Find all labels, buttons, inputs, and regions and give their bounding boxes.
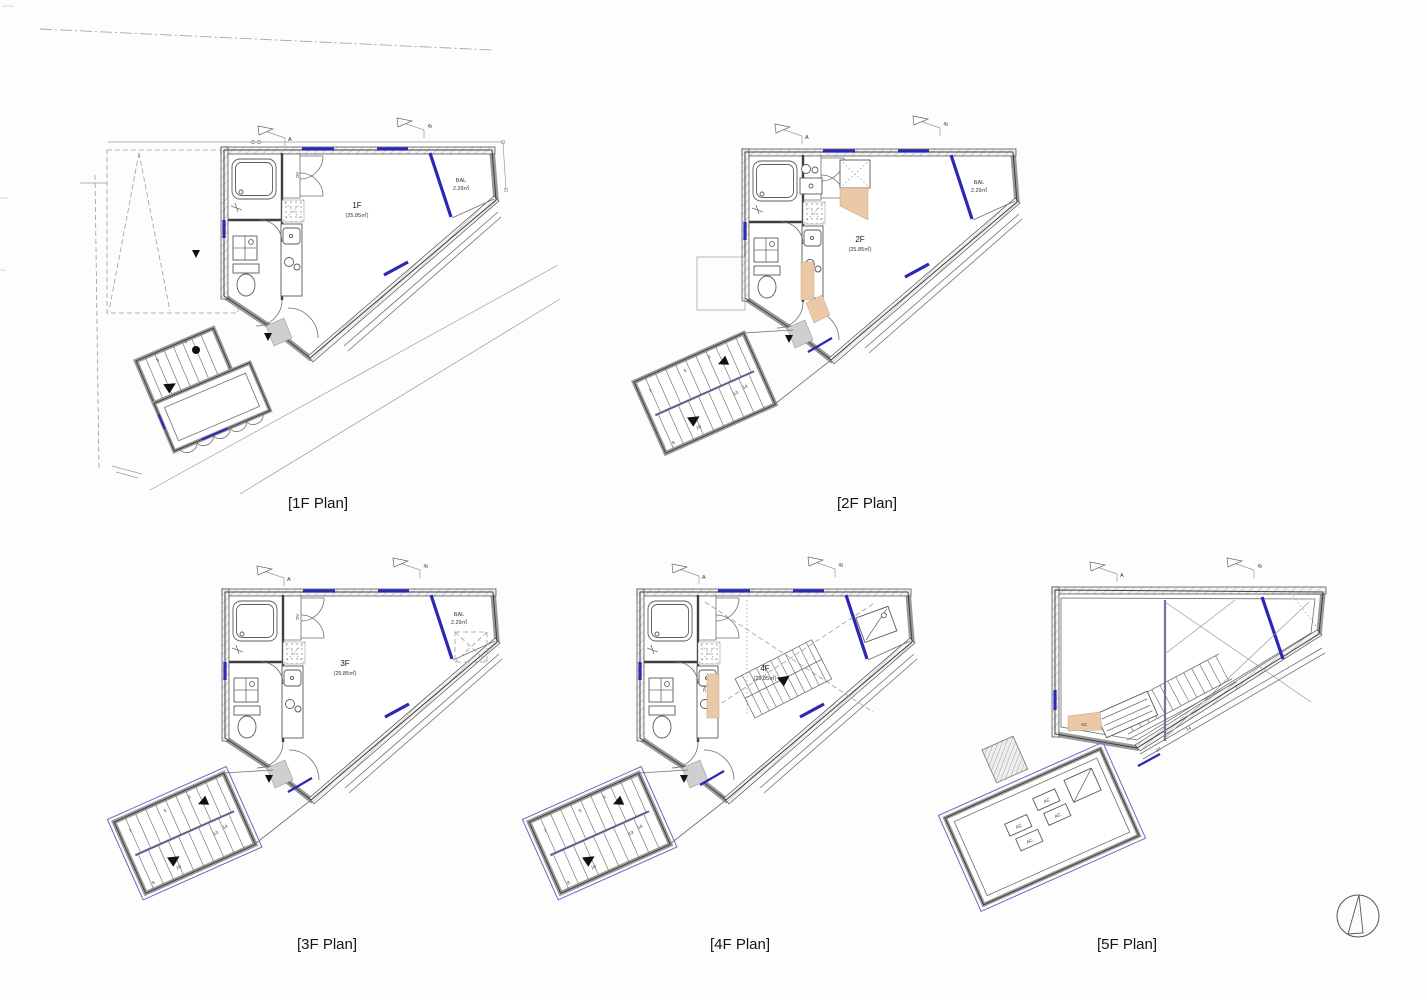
rooftop-hatch-square: [982, 736, 1028, 783]
floor-plan-3f: 3F (25.85㎡) BAL 2.29㎡ AC 1 5 7 8 10 13 1…: [107, 558, 502, 900]
caption-4f-plan: [4F Plan]: [710, 936, 770, 953]
svg-text:A: A: [805, 135, 809, 141]
section-flag-a-1f: A: [258, 126, 292, 146]
room-label: 2F: [855, 235, 864, 244]
room-label: 1F: [352, 201, 361, 210]
floor-plan-4f: 4F (25.85㎡) AC 1 5 7 8 10 13 14 A B: [522, 557, 917, 900]
roof-below-outline: [697, 257, 745, 310]
caption-3f-plan: [3F Plan]: [297, 936, 357, 953]
section-flag-b-5f: B: [1227, 558, 1264, 578]
section-flag-a-2f: A: [775, 124, 809, 144]
section-flag-b-1f: B: [397, 118, 434, 138]
caption-5f-plan: [5F Plan]: [1097, 936, 1157, 953]
section-flag-b-4f: B: [808, 557, 845, 577]
section-flag-b-2f: B: [913, 116, 950, 136]
balcony-label: BAL: [456, 178, 466, 184]
balcony-label: BAL: [974, 180, 984, 186]
entrance-post: [192, 346, 200, 354]
floor-plan-5f: AC AC AC AC AC 7 14 17: [938, 558, 1326, 911]
section-flag-a-3f: A: [257, 566, 291, 586]
svg-text:B: B: [427, 123, 434, 129]
floor-plan-2f: 2F (25.85㎡) BAL 2.29㎡ 1 5 7 8 10 13 14 A…: [634, 116, 1022, 453]
room-area: (25.85㎡): [849, 245, 872, 253]
edge-artifacts: [0, 6, 14, 270]
north-arrow-icon: [1337, 895, 1379, 937]
svg-text:A: A: [288, 137, 292, 143]
caption-1f-plan: [1F Plan]: [288, 495, 348, 512]
balcony-area: 2.29㎡: [971, 186, 988, 194]
drawing-page: 1F (25.85㎡) BAL 2.29㎡ AC 1 5 A B: [0, 0, 1427, 1000]
section-flag-a-5f: A: [1090, 562, 1124, 582]
wood-strip-1: [801, 262, 814, 300]
svg-text:B: B: [943, 121, 950, 127]
svg-text:B: B: [423, 563, 430, 569]
entrance-stair-porch-1f: [136, 320, 273, 457]
room-label: 4F: [760, 664, 769, 673]
section-flag-a-4f: A: [672, 564, 706, 584]
svg-text:A: A: [702, 575, 706, 581]
drawing-sheet: 1F (25.85㎡) BAL 2.29㎡ AC 1 5 A B: [0, 0, 1427, 1000]
svg-text:B: B: [838, 562, 845, 568]
room-label: 3F: [340, 659, 349, 668]
svg-text:A: A: [1120, 573, 1124, 579]
roof-terrace: AC AC AC AC: [938, 742, 1145, 911]
caption-2f-plan: [2F Plan]: [837, 495, 897, 512]
closet-ac-label: AC: [702, 686, 707, 693]
balcony-label: BAL: [454, 612, 464, 618]
wood-door-strip: [707, 674, 719, 718]
room-area: (25.85㎡): [334, 669, 357, 677]
ac-wedge-label: AC: [1081, 722, 1088, 727]
svg-text:A: A: [287, 577, 291, 583]
room-area: (25.85㎡): [346, 211, 369, 219]
room-area: (25.85㎡): [754, 674, 777, 682]
svg-text:B: B: [1257, 563, 1264, 569]
section-flag-b-3f: B: [393, 558, 430, 578]
site-entry-arrow-icon: [192, 250, 200, 258]
floor-plan-1f: 1F (25.85㎡) BAL 2.29㎡ AC 1 5 A B: [40, 29, 560, 494]
stair-number: 17: [1155, 746, 1162, 753]
closet-ac-label: AC: [295, 172, 300, 179]
balcony-area: 2.29㎡: [451, 618, 468, 626]
closet-ac-label: AC: [295, 614, 300, 621]
balcony-area: 2.29㎡: [453, 184, 470, 192]
